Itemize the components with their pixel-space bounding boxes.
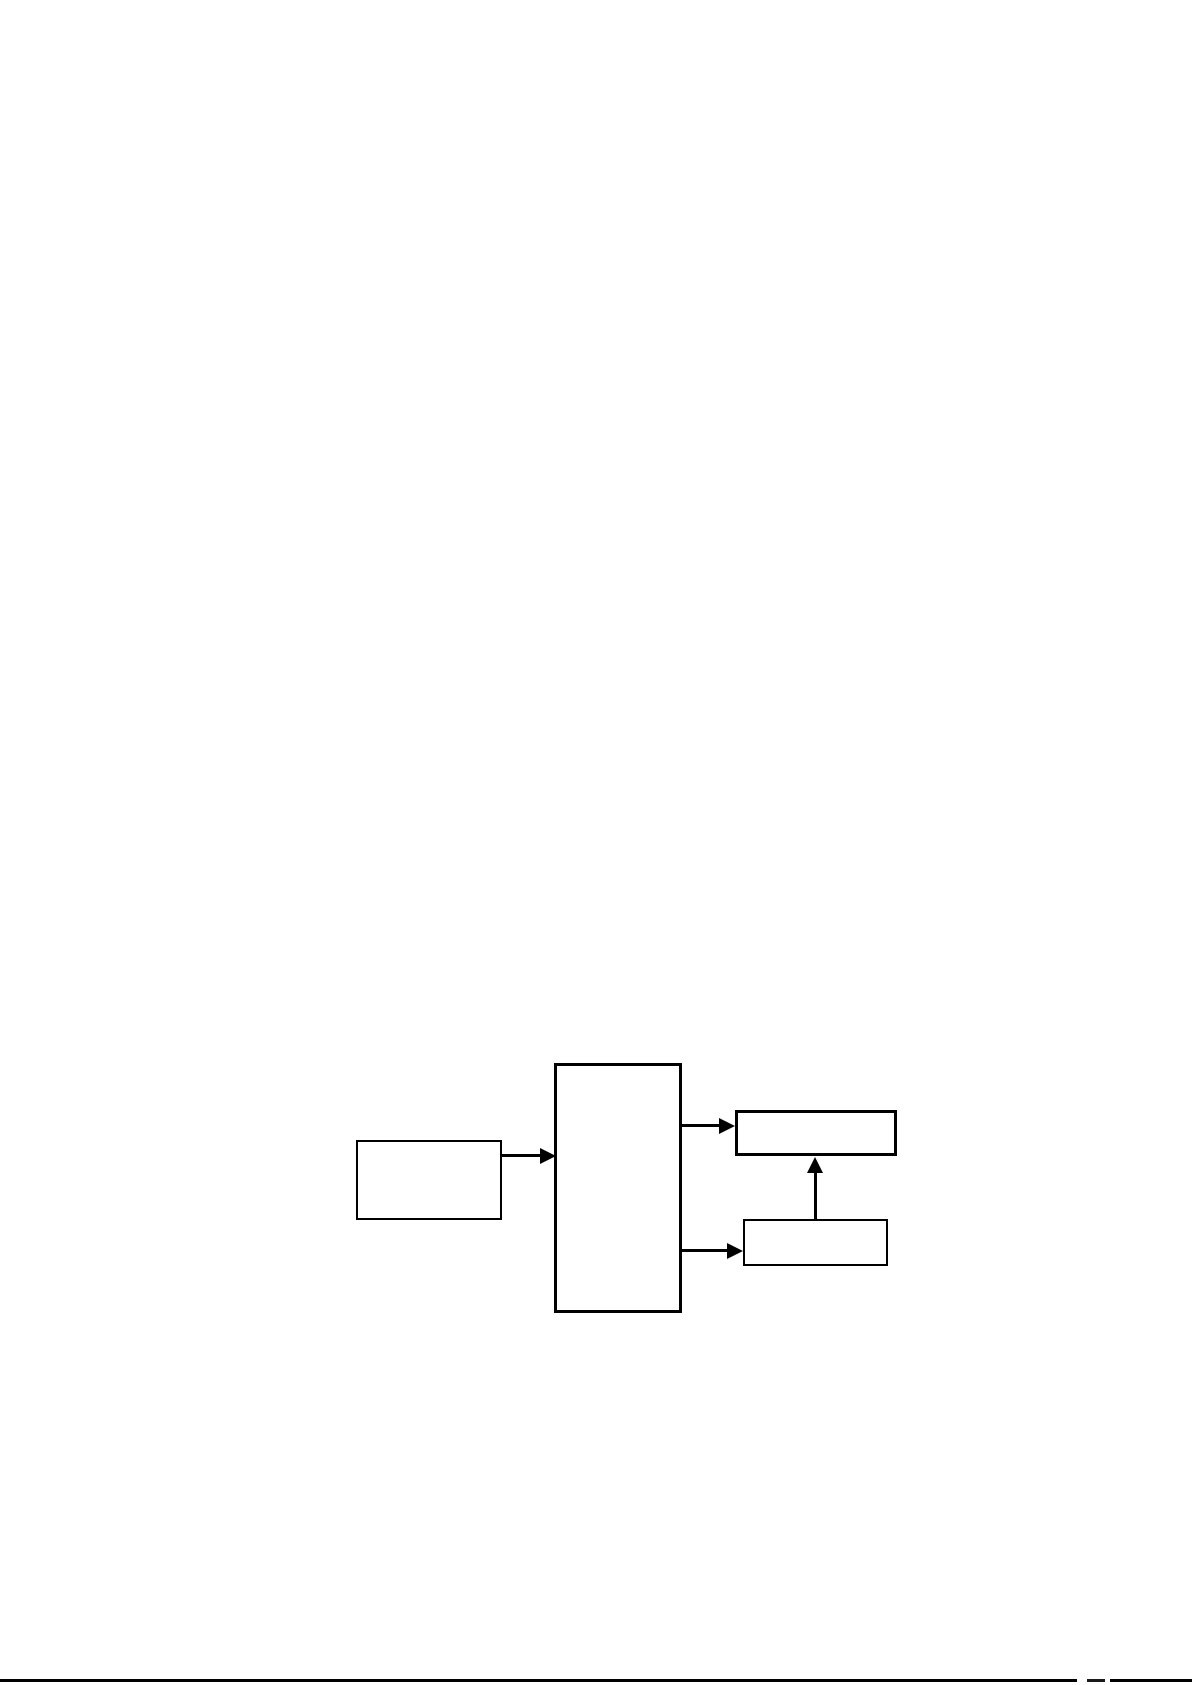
flowchart-node-center	[554, 1063, 682, 1313]
flowchart-node-top-right	[735, 1110, 897, 1156]
arrow-shaft	[681, 1249, 728, 1252]
footer-rule-segment	[0, 1679, 1077, 1682]
arrow-shaft	[814, 1170, 817, 1220]
flowchart-node-left	[356, 1140, 502, 1220]
arrowhead-up-icon	[807, 1157, 823, 1173]
document-page	[0, 0, 1192, 1685]
arrowhead-right-icon	[719, 1118, 735, 1134]
arrowhead-right-icon	[540, 1148, 556, 1164]
arrow-shaft	[501, 1154, 542, 1157]
footer-rule-segment	[1087, 1679, 1105, 1682]
flowchart-node-bottom-right	[743, 1219, 888, 1266]
footer-rule-segment	[1110, 1679, 1192, 1682]
arrowhead-right-icon	[727, 1243, 743, 1259]
arrow-shaft	[681, 1124, 721, 1127]
